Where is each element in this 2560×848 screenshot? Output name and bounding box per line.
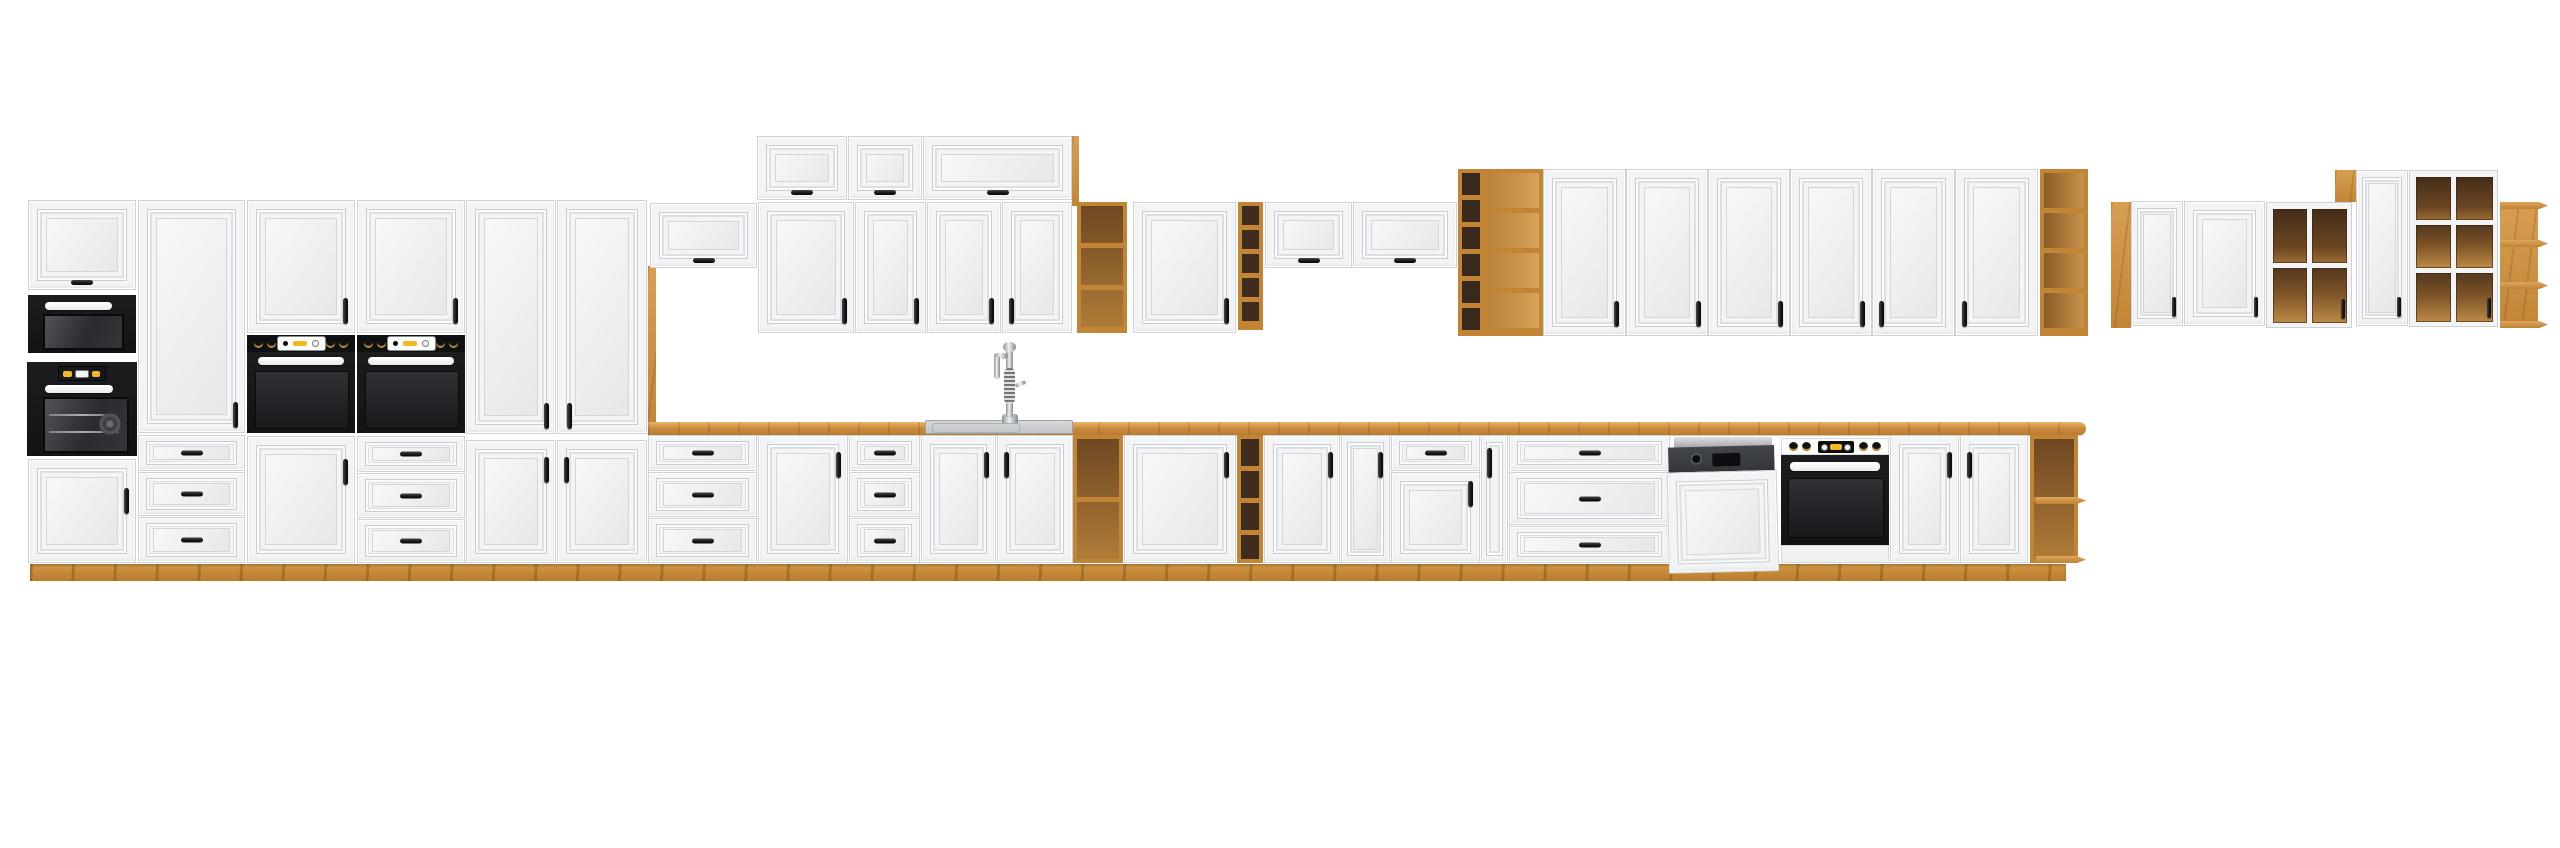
- door-handle: [2172, 297, 2176, 317]
- glass-pane: [2312, 209, 2347, 263]
- door-handle: [453, 298, 458, 324]
- wall-door-w4: [1002, 202, 1072, 333]
- glass-pane: [2416, 177, 2451, 220]
- top-row-side-panel: [1072, 136, 1079, 206]
- dishwasher-handle-recess: [1712, 453, 1740, 467]
- oven-knob: [267, 339, 276, 348]
- corner-shelf-board: [2500, 321, 2548, 328]
- base-door-6: [1264, 435, 1340, 563]
- door-handle: [343, 298, 348, 324]
- compact-oven: [27, 362, 137, 456]
- glass-pane: [2456, 225, 2493, 268]
- sink-bowl-outline: [932, 423, 1020, 433]
- door-handle: [233, 402, 238, 428]
- door-handle: [1328, 452, 1333, 478]
- oven-control-panel-a3: [247, 335, 355, 352]
- dishwasher: [1666, 437, 1780, 575]
- display-digits: [63, 371, 72, 377]
- oven-knob: [436, 339, 445, 348]
- oven-door: [1781, 455, 1889, 545]
- right-group-side-panel: [2111, 202, 2131, 328]
- door-handle: [842, 298, 847, 324]
- drawer-handle: [874, 492, 896, 497]
- drawer-handle: [400, 539, 422, 544]
- door-handle: [1004, 452, 1009, 478]
- cabinet-handle: [791, 190, 813, 195]
- door-handle: [544, 457, 549, 483]
- door-handle: [1962, 301, 1967, 327]
- built-in-oven-a3: [247, 352, 355, 433]
- dishwasher-door-assembly: [1666, 445, 1779, 576]
- drawer-handle: [1579, 451, 1601, 456]
- display-digits-2: [92, 371, 100, 377]
- faucet-top-cap: [1003, 342, 1016, 352]
- door-handle: [1468, 481, 1473, 507]
- glass-pane: [2416, 273, 2451, 322]
- door-handle: [1009, 298, 1014, 324]
- countertop: [648, 422, 2086, 435]
- oven-fan: [99, 413, 121, 435]
- door-handle: [836, 452, 841, 478]
- drawer-handle: [1425, 451, 1447, 456]
- door-handle: [1224, 452, 1229, 478]
- oven-knob: [449, 339, 458, 348]
- wall-door-w5: [1133, 202, 1236, 333]
- oven-handle-bar: [1790, 462, 1880, 471]
- microwave: [28, 295, 136, 353]
- door-handle: [544, 403, 549, 429]
- oven-knob: [377, 339, 386, 348]
- door-handle: [124, 488, 129, 514]
- door-handle: [1696, 301, 1701, 327]
- drawer-handle: [692, 451, 714, 456]
- door-handle: [2254, 297, 2258, 317]
- pantry-lower-door-b1: [466, 440, 556, 563]
- indicator-bar: [1830, 444, 1842, 450]
- base-drawer-3c: [849, 518, 920, 563]
- corner-shelf-board: [2500, 282, 2548, 289]
- tall-pantry-door-a2: [138, 200, 245, 433]
- over-fridge-flip-cabinet: [650, 203, 757, 268]
- door-handle: [1614, 301, 1619, 327]
- indicator-dot: [283, 341, 288, 346]
- drawer-handle: [1579, 496, 1601, 501]
- oak-open-base-shelf: [1073, 435, 1123, 563]
- corner-base-shelf-board: [2036, 556, 2086, 563]
- top-flip-cabinet-2: [848, 136, 922, 200]
- oven-window: [365, 371, 459, 429]
- drawer-a4-1: [357, 436, 465, 472]
- base-drawer-9c: [1509, 526, 1670, 563]
- corner-shelf-board: [2500, 202, 2548, 209]
- door-handle: [1947, 452, 1952, 478]
- base-drawer-9a: [1509, 435, 1670, 471]
- door-handle: [1879, 301, 1884, 327]
- base-door-5: [1124, 435, 1236, 563]
- wall-door-a3: [247, 200, 355, 333]
- wall-door-w3: [927, 202, 1001, 333]
- corner-shelf-board: [2500, 240, 2548, 247]
- indicator-dot: [313, 341, 318, 346]
- flip-cabinet-fc2: [1353, 202, 1457, 268]
- cargo-unit-door: [1481, 435, 1508, 563]
- tall-side-filler-panel: [648, 266, 656, 433]
- oven-knob: [326, 339, 335, 348]
- indicator-dot: [1822, 445, 1827, 450]
- drawer-a4-2: [357, 473, 465, 518]
- base-door-10-left: [1890, 435, 1959, 563]
- oven-program-panel: [388, 337, 435, 350]
- door-handle: [2397, 297, 2401, 317]
- top-flip-cabinet-1: [757, 136, 847, 200]
- oven-lower-filler: [1781, 545, 1889, 563]
- door-handle: [1378, 452, 1383, 478]
- oven-handle-bar: [368, 357, 454, 365]
- base-drawer-9b: [1509, 472, 1670, 525]
- wall-door-w1: [758, 202, 854, 333]
- tall-wall-door-d1: [1543, 169, 1626, 336]
- door-handle: [1487, 448, 1492, 478]
- faucet-spout-head: [994, 357, 1000, 379]
- right-tall-door: [2356, 170, 2408, 326]
- cabinet-handle: [71, 280, 93, 285]
- oven-display: [58, 366, 106, 381]
- drawer-handle: [181, 538, 203, 543]
- indicator-bar: [403, 341, 417, 346]
- base-door-a1: [28, 459, 136, 563]
- kitchen-product-image: [0, 0, 2560, 848]
- display-icons: [76, 371, 88, 377]
- dishwasher-control-panel: [1668, 445, 1775, 473]
- oven-window: [1788, 478, 1884, 538]
- indicator-dot: [423, 341, 428, 346]
- drawer-handle: [181, 451, 203, 456]
- top-flip-cabinet-3: [923, 136, 1072, 200]
- door-handle: [989, 298, 994, 324]
- base-drawer-3b: [849, 472, 920, 517]
- glass-pane: [2416, 225, 2451, 268]
- base-door-7: [1341, 435, 1390, 563]
- sink-cabinet-door-right: [997, 435, 1073, 563]
- tall-wall-door-d6: [1955, 169, 2038, 336]
- drawer-handle: [874, 538, 896, 543]
- oven-knob-strip: [1781, 438, 1889, 455]
- drawer-handle: [181, 492, 203, 497]
- tall-wall-door-d2: [1626, 169, 1708, 336]
- drawer-handle: [874, 451, 896, 456]
- spring-neck-faucet: [993, 342, 1029, 424]
- oak-tower-shelf-column: [1484, 169, 1543, 336]
- drawer-handle: [1579, 542, 1601, 547]
- base-door-a3: [247, 436, 355, 563]
- drawer-handle: [692, 538, 714, 543]
- door-handle: [1224, 298, 1229, 324]
- tall-wall-door-d3: [1708, 169, 1790, 336]
- oven-window: [255, 371, 349, 429]
- sink-cabinet-door-left: [921, 435, 996, 563]
- narrow-oak-cubby-tower-base: [1237, 435, 1263, 563]
- base-drawer-8a: [1391, 435, 1480, 471]
- cabinet-handle: [987, 190, 1009, 195]
- flip-wall-cabinet-a1: [28, 200, 136, 290]
- indicator-dot: [1845, 445, 1850, 450]
- glass-pane: [2456, 177, 2493, 220]
- oak-tower-cubby-column: [1458, 169, 1484, 336]
- door-handle: [914, 298, 919, 324]
- drawer-a2-1: [138, 435, 245, 471]
- base-drawer-1a: [648, 435, 757, 471]
- corner-open-shelf-back: [2500, 202, 2538, 328]
- tall-wall-door-d5: [1872, 169, 1955, 336]
- wall-door-a4: [357, 200, 465, 333]
- drawer-a2-3: [138, 517, 245, 563]
- base-drawer-3a: [849, 435, 920, 471]
- flip-cabinet-fc1: [1265, 202, 1352, 268]
- right-wall-door-2: [2184, 201, 2265, 326]
- oven-handle-bar: [45, 385, 113, 393]
- faucet-lever: [1015, 380, 1027, 388]
- oak-top-box: [2335, 170, 2356, 202]
- door-handle: [984, 452, 989, 478]
- drawer-a2-2: [138, 472, 245, 516]
- door-handle: [2487, 298, 2491, 318]
- oven-program-panel: [1818, 441, 1854, 453]
- oven-program-panel: [278, 337, 325, 350]
- glass-door-cabinet-2x2: [2266, 202, 2352, 328]
- oven-knob: [254, 339, 263, 348]
- pantry-upper-door-b2: [557, 200, 647, 434]
- door-handle: [1967, 452, 1972, 478]
- oak-end-open-shelf: [2040, 169, 2088, 336]
- glass-door-cabinet-2x3: [2409, 170, 2498, 327]
- base-door-2: [758, 435, 848, 563]
- cabinet-handle: [693, 258, 715, 263]
- base-door-10-right: [1960, 435, 2028, 563]
- microwave-handle-bar: [45, 302, 112, 310]
- oven-knob: [339, 339, 348, 348]
- glass-pane: [2273, 209, 2307, 263]
- oak-open-wall-shelf: [1077, 202, 1127, 333]
- built-in-oven-a4: [357, 352, 465, 433]
- tall-wall-door-d4: [1790, 169, 1872, 336]
- microwave-window: [43, 314, 124, 350]
- oven-knob: [1872, 442, 1881, 451]
- oven-knob: [364, 339, 373, 348]
- oven-control-panel-a4: [357, 335, 465, 352]
- narrow-oak-cubby-tower-wall: [1238, 202, 1263, 330]
- built-in-oven-main: [1781, 437, 1889, 563]
- base-door-8b: [1391, 472, 1480, 563]
- drawer-handle: [692, 492, 714, 497]
- dishwasher-front-panel: [1667, 470, 1779, 574]
- door-handle: [1860, 301, 1865, 327]
- oven-handle-bar: [258, 357, 344, 365]
- door-handle: [1778, 301, 1783, 327]
- pantry-upper-door-b1: [466, 200, 556, 434]
- cabinet-handle: [1394, 258, 1416, 263]
- door-handle: [2341, 299, 2345, 319]
- oven-knob: [1859, 442, 1868, 451]
- pantry-lower-door-b2: [557, 440, 647, 563]
- oven-knob: [1789, 442, 1798, 451]
- cabinet-handle: [874, 190, 896, 195]
- faucet-spring-coil: [1004, 368, 1015, 404]
- door-handle: [564, 457, 569, 483]
- wall-door-w2: [855, 202, 926, 333]
- indicator-dot: [393, 341, 398, 346]
- oven-knob: [1802, 442, 1811, 451]
- oven-window: [43, 397, 129, 453]
- drawer-a4-3: [357, 519, 465, 563]
- cabinet-handle: [1298, 258, 1320, 263]
- drawer-handle: [400, 452, 422, 457]
- indicator-bar: [293, 341, 307, 346]
- drawer-handle: [400, 493, 422, 498]
- glass-pane: [2273, 268, 2307, 323]
- corner-base-shelf-board: [2036, 497, 2086, 504]
- base-drawer-1b: [648, 472, 757, 517]
- base-drawer-1c: [648, 518, 757, 563]
- right-wall-door-1: [2131, 201, 2183, 326]
- door-handle: [567, 403, 572, 429]
- dishwasher-dial: [1690, 453, 1702, 465]
- door-handle: [343, 459, 348, 485]
